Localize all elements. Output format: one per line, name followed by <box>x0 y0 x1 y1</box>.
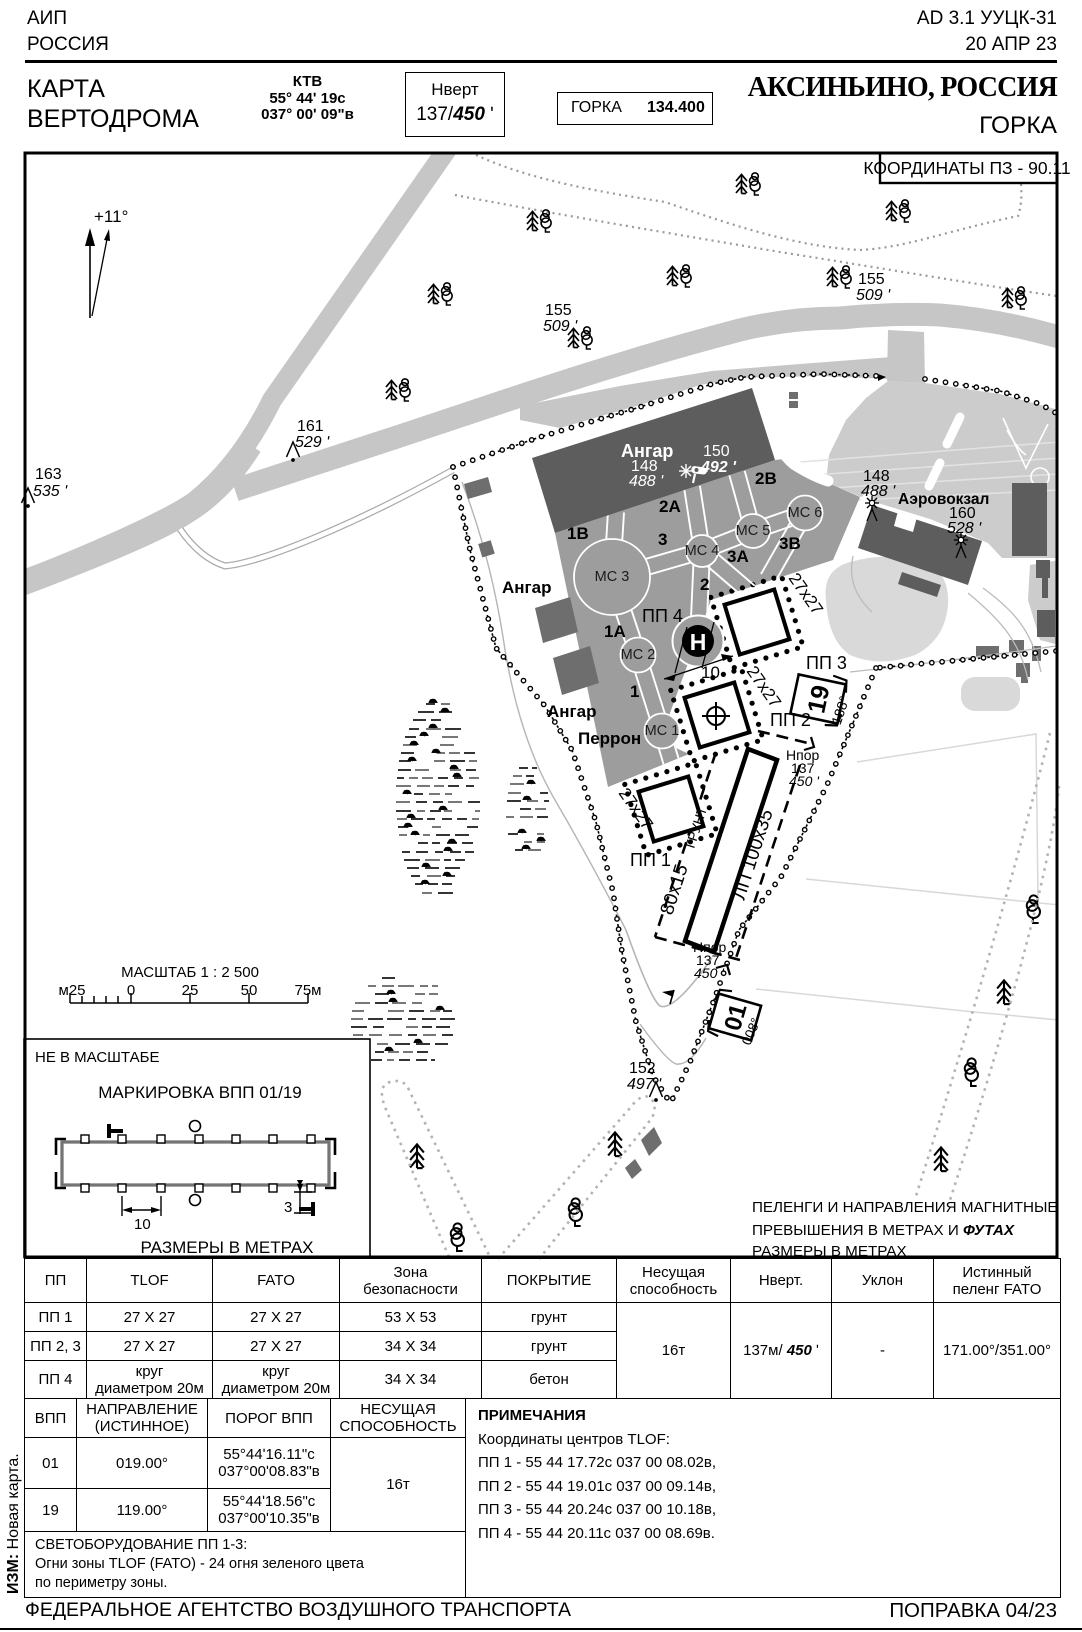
svg-text:80х15: 80х15 <box>657 862 693 918</box>
svg-text:МС 2: МС 2 <box>621 647 656 663</box>
svg-text:МС 5: МС 5 <box>736 523 771 539</box>
svg-text:ИЗМ: Новая карта.: ИЗМ: Новая карта. <box>5 1453 22 1594</box>
svg-text:450 ʹ: 450 ʹ <box>789 773 820 789</box>
svg-text:0: 0 <box>127 982 135 999</box>
svg-text:МАСШТАБ 1 : 2 500: МАСШТАБ 1 : 2 500 <box>121 964 259 981</box>
svg-text:+11°: +11° <box>94 207 128 226</box>
svg-text:МС 1: МС 1 <box>645 723 680 739</box>
svg-text:3В: 3В <box>779 534 801 553</box>
svg-text:2: 2 <box>700 575 709 594</box>
svg-text:Ангар: Ангар <box>547 702 596 721</box>
svg-text:3: 3 <box>658 530 667 549</box>
svg-text:528 ʹ: 528 ʹ <box>947 520 982 537</box>
svg-text:155: 155 <box>858 271 885 288</box>
svg-text:ПП 3: ПП 3 <box>806 653 847 673</box>
svg-text:488 ʹ: 488 ʹ <box>861 483 896 500</box>
svg-text:КООРДИНАТЫ ПЗ - 90.11: КООРДИНАТЫ ПЗ - 90.11 <box>863 158 1070 178</box>
svg-text:3: 3 <box>284 1199 292 1216</box>
svg-text:529 ʹ: 529 ʹ <box>295 434 330 451</box>
svg-text:H: H <box>690 629 707 655</box>
svg-text:509 ʹ: 509 ʹ <box>856 287 891 304</box>
svg-text:163: 163 <box>35 466 62 483</box>
svg-text:МАРКИРОВКА ВПП 01/19: МАРКИРОВКА ВПП 01/19 <box>98 1083 302 1102</box>
svg-text:488 ʹ: 488 ʹ <box>629 473 664 490</box>
svg-text:РАЗМЕРЫ В МЕТРАХ: РАЗМЕРЫ В МЕТРАХ <box>140 1238 313 1257</box>
svg-text:25: 25 <box>182 982 199 999</box>
svg-text:ПП 2: ПП 2 <box>770 710 811 730</box>
svg-text:10: 10 <box>701 663 720 682</box>
svg-text:1А: 1А <box>604 622 626 641</box>
svg-text:10: 10 <box>134 1216 151 1233</box>
svg-text:535 ʹ: 535 ʹ <box>33 483 68 500</box>
svg-text:150: 150 <box>703 443 730 460</box>
svg-text:155: 155 <box>545 302 572 319</box>
svg-text:НЕ В МАСШТАБЕ: НЕ В МАСШТАБЕ <box>35 1049 159 1066</box>
svg-text:Перрон: Перрон <box>578 729 641 748</box>
svg-text:ПП 1: ПП 1 <box>630 850 671 870</box>
svg-text:161: 161 <box>297 418 324 435</box>
svg-text:509 ʹ: 509 ʹ <box>543 318 578 335</box>
svg-text:ПРЕВЫШЕНИЯ В МЕТРАХ И ФУТАХ: ПРЕВЫШЕНИЯ В МЕТРАХ И ФУТАХ <box>752 1222 1015 1239</box>
svg-text:27х27: 27х27 <box>743 662 785 711</box>
svg-text:1В: 1В <box>567 524 589 543</box>
svg-text:2В: 2В <box>755 469 777 488</box>
svg-text:152: 152 <box>629 1060 656 1077</box>
svg-text:м25: м25 <box>59 982 86 999</box>
svg-text:450 ʹ: 450 ʹ <box>694 965 725 981</box>
svg-text:1: 1 <box>630 682 639 701</box>
svg-text:Ангар: Ангар <box>502 578 551 597</box>
svg-text:75м: 75м <box>295 982 322 999</box>
svg-text:3А: 3А <box>727 547 749 566</box>
svg-text:2А: 2А <box>659 497 681 516</box>
svg-text:МС 3: МС 3 <box>595 569 630 585</box>
svg-text:ПЕЛЕНГИ И НАПРАВЛЕНИЯ МАГНИТНЫ: ПЕЛЕНГИ И НАПРАВЛЕНИЯ МАГНИТНЫЕ <box>752 1199 1058 1216</box>
svg-text:50: 50 <box>241 982 258 999</box>
svg-text:МС 6: МС 6 <box>788 505 823 521</box>
svg-text:МС 4: МС 4 <box>685 543 720 559</box>
svg-text:ПП 4: ПП 4 <box>642 606 683 626</box>
